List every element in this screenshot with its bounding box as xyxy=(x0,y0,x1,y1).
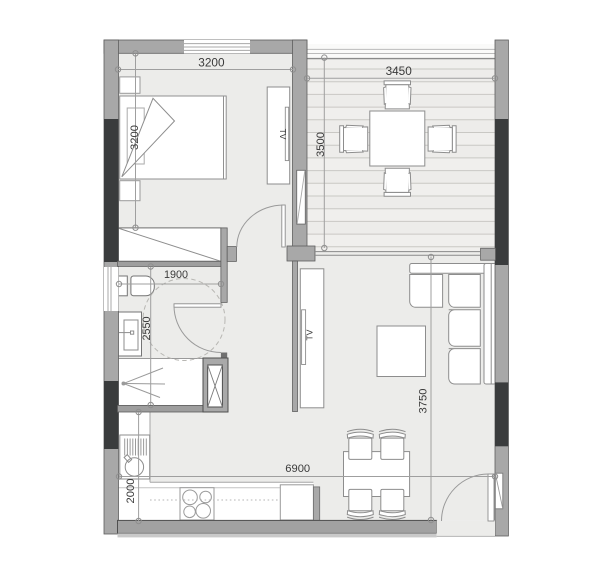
svg-text:2550: 2550 xyxy=(141,316,153,340)
svg-text:3200: 3200 xyxy=(198,56,225,70)
svg-text:1900: 1900 xyxy=(164,269,188,281)
svg-text:TV: TV xyxy=(305,329,315,340)
svg-text:3750: 3750 xyxy=(417,389,429,414)
svg-text:3450: 3450 xyxy=(386,64,413,78)
svg-text:3200: 3200 xyxy=(129,125,141,150)
svg-text:2000: 2000 xyxy=(125,479,137,504)
svg-text:TV: TV xyxy=(278,129,288,140)
svg-text:3500: 3500 xyxy=(315,132,327,157)
svg-text:6900: 6900 xyxy=(285,463,310,475)
